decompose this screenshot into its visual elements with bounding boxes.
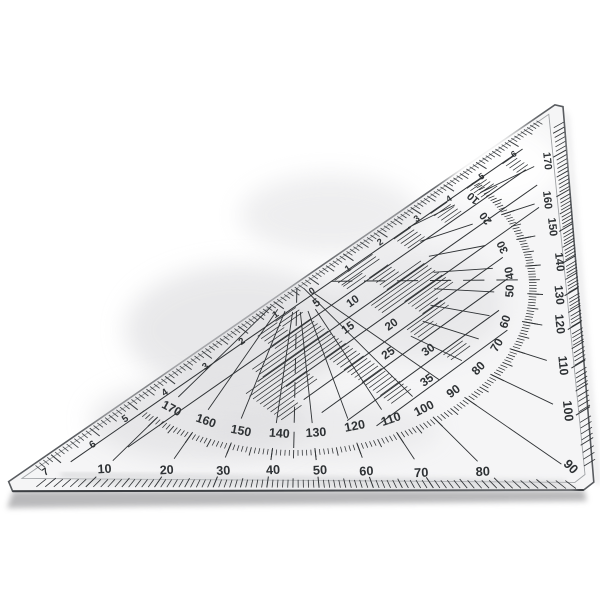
svg-text:100: 100 [560, 400, 576, 422]
svg-text:140: 140 [552, 252, 566, 272]
svg-text:130: 130 [552, 285, 567, 306]
svg-text:20: 20 [159, 463, 174, 478]
svg-text:170: 170 [540, 151, 554, 170]
svg-text:10: 10 [97, 462, 112, 477]
svg-text:50: 50 [313, 463, 328, 478]
svg-text:160: 160 [540, 190, 554, 210]
svg-text:150: 150 [545, 217, 559, 237]
svg-text:30: 30 [216, 463, 231, 478]
svg-text:110: 110 [555, 355, 571, 376]
svg-text:130: 130 [305, 425, 327, 440]
svg-text:140: 140 [269, 426, 291, 441]
svg-text:50: 50 [503, 284, 517, 298]
svg-text:80: 80 [475, 463, 490, 479]
svg-text:60: 60 [359, 464, 374, 479]
svg-text:40: 40 [266, 463, 281, 478]
svg-text:70: 70 [414, 465, 429, 481]
svg-text:40: 40 [503, 266, 517, 281]
svg-text:120: 120 [552, 313, 568, 335]
